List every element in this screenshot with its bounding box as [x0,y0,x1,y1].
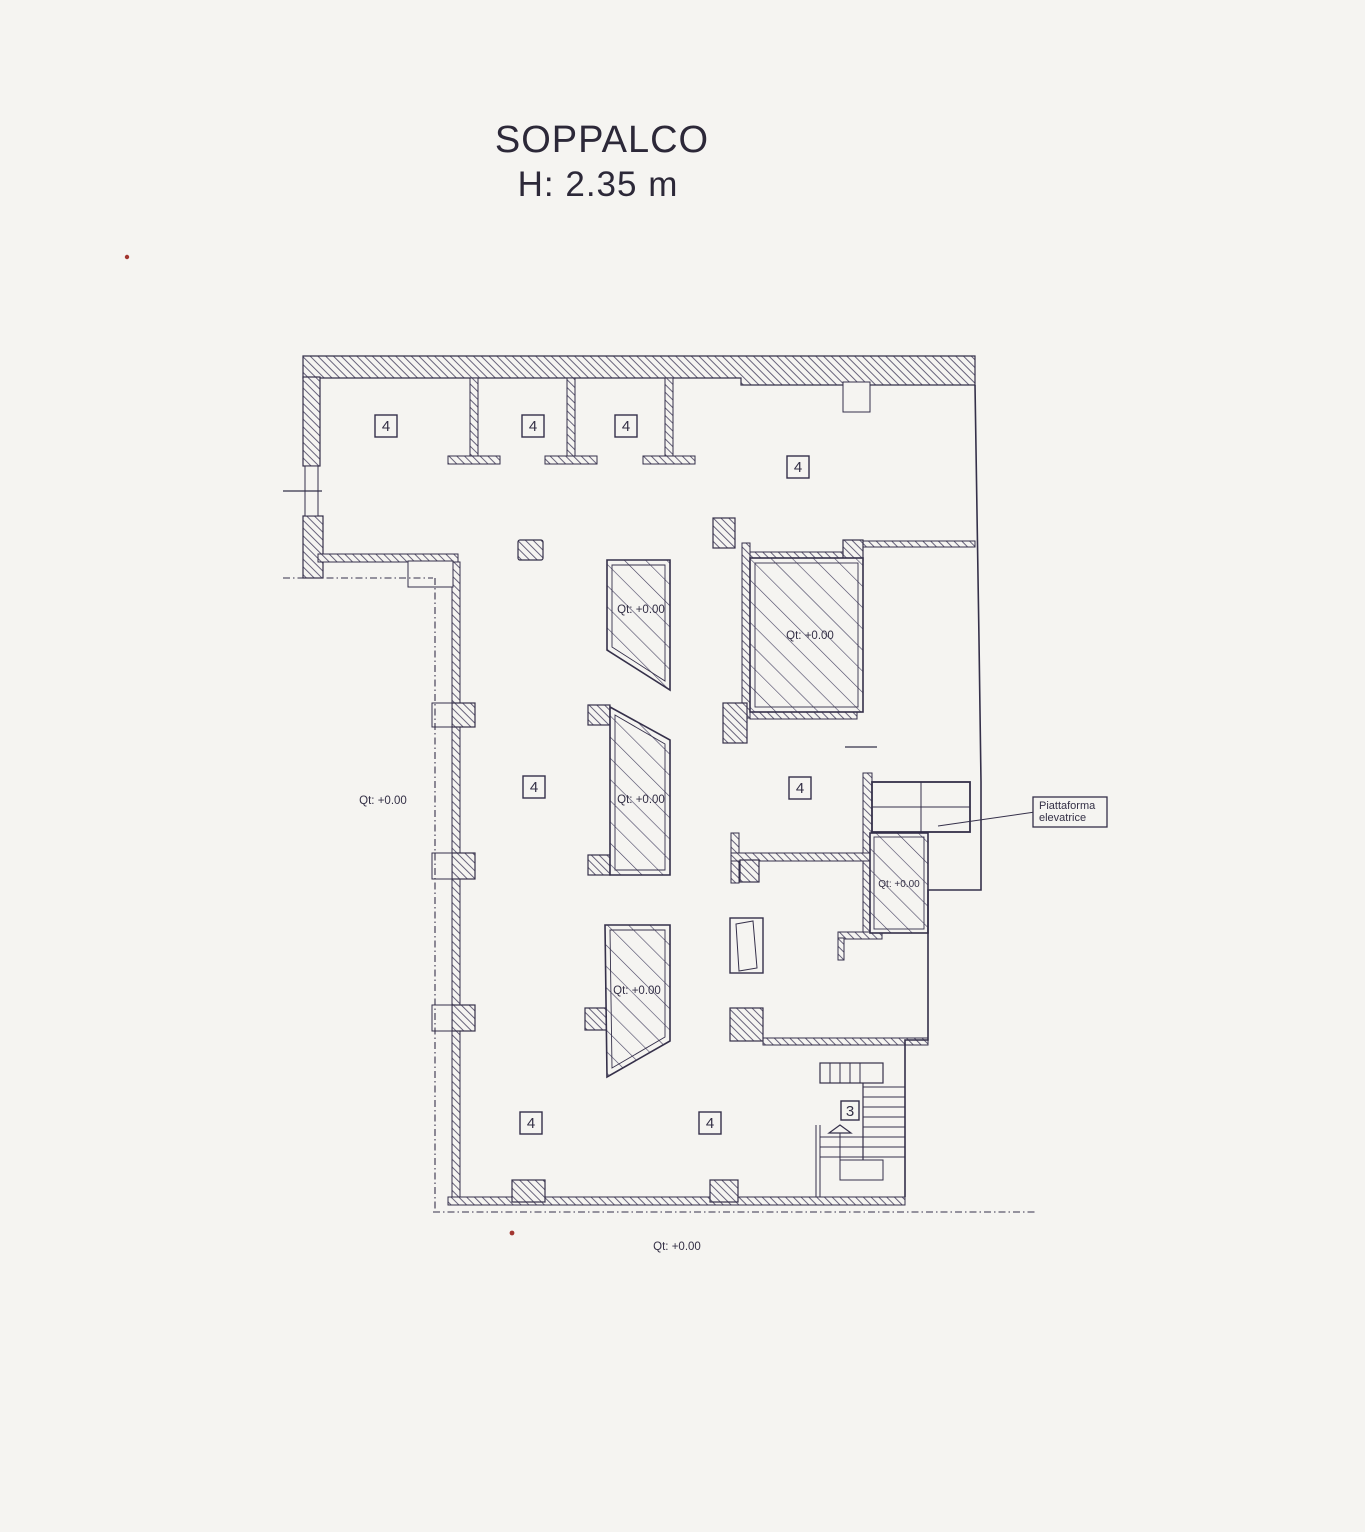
stair-room-label: 3 [841,1101,859,1120]
platform-callout-label: elevatrice [1039,812,1086,824]
stair-arrow-icon [829,1125,851,1133]
svg-text:4: 4 [622,418,630,435]
column [843,540,863,560]
column [588,705,610,725]
level-label: Qt: +0.00 [617,604,665,616]
svg-text:4: 4 [530,779,538,796]
svg-text:4: 4 [529,418,537,435]
wall-west-lower [303,516,323,578]
level-label: Qt: +0.00 [613,985,661,997]
svg-text:4: 4 [527,1115,535,1132]
room-label: 4 [375,415,397,437]
room-label: 4 [615,415,637,437]
wall-pilaster [452,1005,475,1031]
room-label: 4 [520,1112,542,1134]
room-label: 4 [787,456,809,478]
level-label: Qt: +0.00 [359,795,407,807]
level-label: Qt: +0.00 [878,879,920,890]
floorplan-page: SOPPALCO H: 2.35 m [0,0,1365,1532]
level-label: Qt: +0.00 [653,1241,701,1253]
svg-text:4: 4 [706,1115,714,1132]
column [723,703,747,743]
floorplan-drawing: SOPPALCO H: 2.35 m [0,0,1365,1532]
door-detail [730,918,763,973]
red-speck [510,1231,515,1236]
room-label: 4 [523,776,545,798]
wall-pilaster [452,703,475,727]
svg-text:3: 3 [846,1103,854,1120]
wall-pilaster [452,853,475,879]
door-niche [408,561,453,587]
room-label: 4 [789,777,811,799]
column [512,1180,545,1202]
svg-text:4: 4 [794,459,802,476]
column [585,1008,607,1030]
page-title: SOPPALCO [495,119,709,161]
platform-callout-label: Piattaforma [1039,800,1096,812]
box-column-top [843,382,870,412]
svg-text:4: 4 [796,780,804,797]
column [710,1180,738,1202]
svg-text:4: 4 [382,418,390,435]
wall-west-upper [303,377,320,466]
column [588,855,610,875]
window-west [283,466,322,516]
stairs [816,1063,905,1197]
page-subtitle-height: H: 2.35 m [518,165,679,204]
red-speck [125,255,129,259]
column [713,518,735,548]
room-label: 4 [522,415,544,437]
plan-title: SOPPALCO H: 2.35 m [495,119,709,204]
elevator-platform: Piattaforma elevatrice [872,782,1107,832]
column [730,1008,763,1041]
column [518,540,543,560]
wall-north [303,356,975,385]
level-label: Qt: +0.00 [786,630,834,642]
level-label: Qt: +0.00 [617,794,665,806]
room-label: 4 [699,1112,721,1134]
column [740,860,759,882]
